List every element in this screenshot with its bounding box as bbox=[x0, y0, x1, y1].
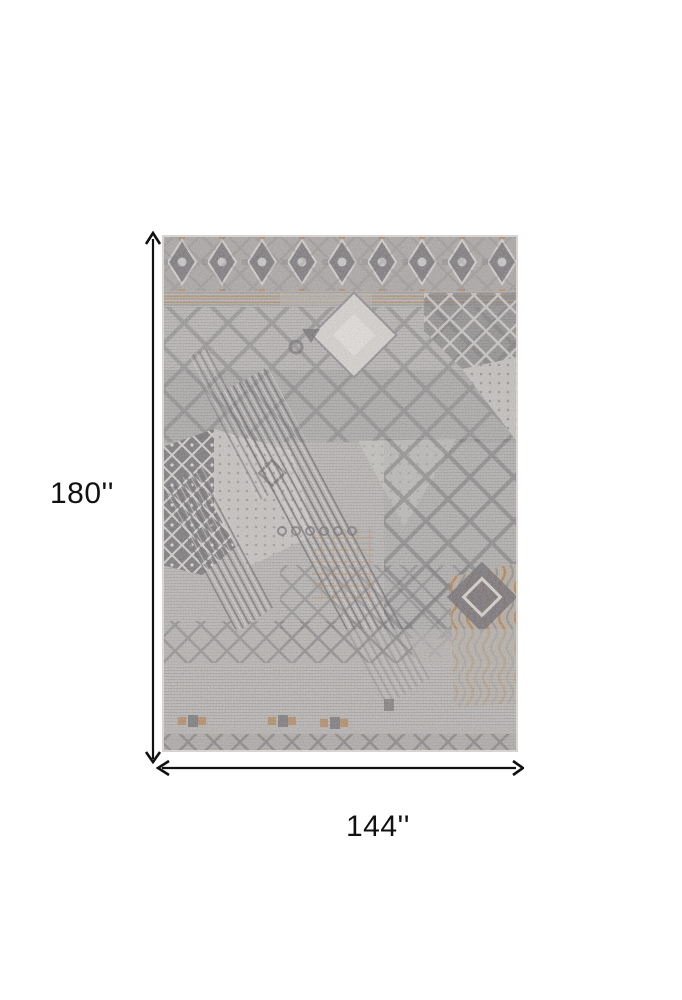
horizontal-dimension-arrow bbox=[154, 759, 524, 777]
width-dimension-label: 144'' bbox=[328, 810, 428, 843]
product-dimension-figure: 180'' 144'' bbox=[0, 0, 682, 1000]
rug-grain-light bbox=[162, 235, 518, 752]
rug-photo bbox=[162, 235, 518, 752]
rug-image bbox=[162, 235, 518, 752]
vertical-dimension-arrow bbox=[144, 231, 162, 767]
height-dimension-label: 180'' bbox=[34, 477, 130, 510]
